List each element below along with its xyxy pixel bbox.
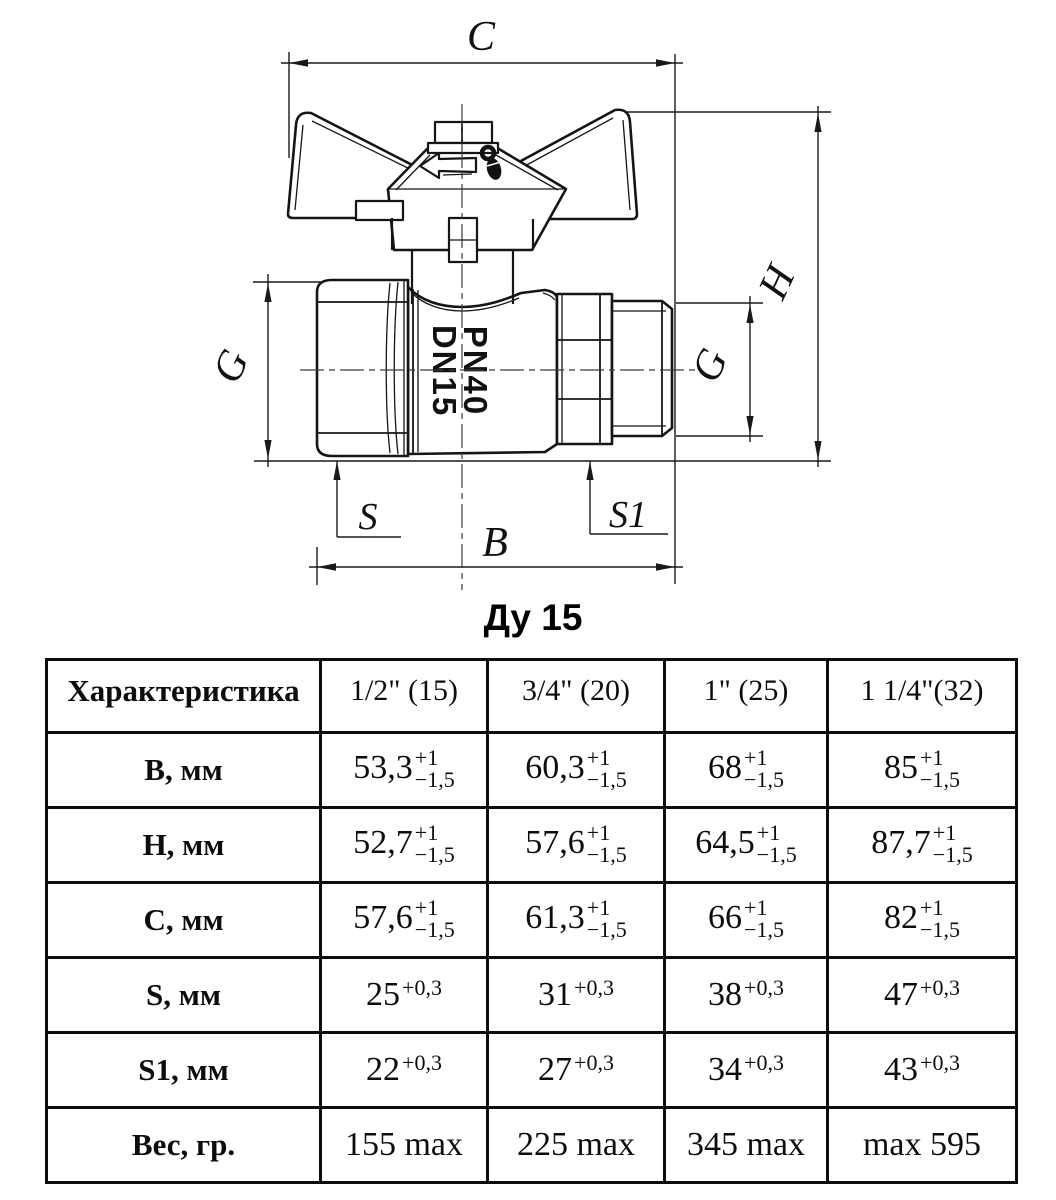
tolerance-upper: +0,3 — [744, 1050, 784, 1075]
tolerance: +1−1,5 — [415, 822, 455, 867]
dim-label-s1: S1 — [609, 494, 647, 536]
tolerance-upper: +1 — [757, 822, 780, 844]
tolerance-lower: −1,5 — [415, 769, 455, 791]
value-base: 87,7 — [871, 824, 931, 862]
dimension-g-right: G — [676, 296, 763, 442]
spec-table-container: Характеристика1/2" (15)3/4" (20)1" (25)1… — [45, 658, 1018, 1184]
tolerance-lower: −1,5 — [757, 844, 797, 866]
value-base: 64,5 — [695, 824, 755, 862]
tolerance-upper: +0,3 — [920, 975, 960, 1000]
value-cell: 87,7+1−1,5 — [828, 808, 1017, 883]
dimension-s: S — [333, 461, 401, 538]
tolerance-upper: +1 — [415, 747, 438, 769]
value-base: 53,3 — [353, 749, 413, 787]
tolerance-upper: +1 — [744, 747, 767, 769]
marking-dn15: DN15 — [426, 325, 463, 417]
value-base: 25 — [366, 976, 400, 1014]
value-base: 60,3 — [525, 749, 585, 787]
row-label: Вес, гр. — [47, 1108, 321, 1183]
dim-label-g-left: G — [204, 343, 259, 390]
male-thread-end — [612, 301, 672, 436]
value-cell: 61,3+1−1,5 — [488, 883, 665, 958]
handle-step-tab — [356, 201, 403, 220]
row-label: H, мм — [47, 808, 321, 883]
tolerance-upper: +1 — [587, 822, 610, 844]
value-base: max 595 — [863, 1126, 981, 1164]
right-hex-section — [557, 294, 612, 444]
value-base: 38 — [708, 976, 742, 1014]
value-base: 52,7 — [353, 824, 413, 862]
tolerance-lower: −1,5 — [744, 769, 784, 791]
row-label: S, мм — [47, 958, 321, 1033]
value-base: 85 — [884, 749, 918, 787]
value-base: 66 — [708, 899, 742, 937]
value-base: 47 — [884, 976, 918, 1014]
value-base: 22 — [366, 1051, 400, 1089]
value-base: 61,3 — [525, 899, 585, 937]
spec-table: Характеристика1/2" (15)3/4" (20)1" (25)1… — [45, 658, 1018, 1184]
tolerance: +1−1,5 — [744, 897, 784, 942]
row-label: C, мм — [47, 883, 321, 958]
value-cell: 57,6+1−1,5 — [488, 808, 665, 883]
size-column-header: 1" (25) — [665, 660, 828, 733]
tolerance: +1−1,5 — [587, 747, 627, 792]
tolerance-upper: +1 — [587, 897, 610, 919]
value-cell: 85+1−1,5 — [828, 733, 1017, 808]
tolerance-upper: +1 — [933, 822, 956, 844]
table-row: C, мм57,6+1−1,561,3+1−1,566+1−1,582+1−1,… — [47, 883, 1017, 958]
value-base: 225 max — [517, 1126, 635, 1164]
tolerance-upper: +1 — [415, 822, 438, 844]
value-cell: 64,5+1−1,5 — [665, 808, 828, 883]
value-cell: 27+0,3 — [488, 1033, 665, 1108]
tolerance-upper: +1 — [920, 747, 943, 769]
size-column-header: 1 1/4"(32) — [828, 660, 1017, 733]
tolerance: +1−1,5 — [587, 822, 627, 867]
tolerance-lower: −1,5 — [920, 919, 960, 941]
value-cell: 345 max — [665, 1108, 828, 1183]
table-row: S1, мм22+0,327+0,334+0,343+0,3 — [47, 1033, 1017, 1108]
value-cell: 60,3+1−1,5 — [488, 733, 665, 808]
characteristic-header: Характеристика — [47, 660, 321, 733]
dim-label-h: H — [750, 257, 806, 307]
value-cell: 57,6+1−1,5 — [321, 883, 488, 958]
tolerance-upper: +0,3 — [744, 975, 784, 1000]
tolerance-upper: +1 — [415, 897, 438, 919]
size-column-header: 3/4" (20) — [488, 660, 665, 733]
value-cell: 155 max — [321, 1108, 488, 1183]
value-base: 345 max — [687, 1126, 805, 1164]
tolerance-upper: +0,3 — [920, 1050, 960, 1075]
tolerance-lower: −1,5 — [933, 844, 973, 866]
row-label: S1, мм — [47, 1033, 321, 1108]
tolerance-lower: −1,5 — [415, 844, 455, 866]
value-cell: 25+0,3 — [321, 958, 488, 1033]
dim-label-g-right: G — [683, 342, 738, 389]
valve-technical-drawing: PN40 DN15 C H G — [0, 0, 1056, 655]
tolerance-lower: −1,5 — [587, 769, 627, 791]
size-column-header: 1/2" (15) — [321, 660, 488, 733]
body-marking: PN40 DN15 — [426, 325, 494, 417]
value-base: 57,6 — [525, 824, 585, 862]
value-base: 82 — [884, 899, 918, 937]
value-base: 57,6 — [353, 899, 413, 937]
tolerance-lower: −1,5 — [587, 844, 627, 866]
drawing-caption: Ду 15 — [484, 597, 583, 638]
value-base: 155 max — [345, 1126, 463, 1164]
table-row: S, мм25+0,331+0,338+0,347+0,3 — [47, 958, 1017, 1033]
table-row: H, мм52,7+1−1,557,6+1−1,564,5+1−1,587,7+… — [47, 808, 1017, 883]
value-cell: 82+1−1,5 — [828, 883, 1017, 958]
tolerance-lower: −1,5 — [744, 919, 784, 941]
value-cell: 52,7+1−1,5 — [321, 808, 488, 883]
value-cell: 53,3+1−1,5 — [321, 733, 488, 808]
tolerance-upper: +0,3 — [574, 1050, 614, 1075]
value-cell: max 595 — [828, 1108, 1017, 1183]
header-row: Характеристика1/2" (15)3/4" (20)1" (25)1… — [47, 660, 1017, 733]
datasheet-page: PN40 DN15 C H G — [0, 0, 1056, 1200]
tolerance-lower: −1,5 — [415, 919, 455, 941]
value-cell: 34+0,3 — [665, 1033, 828, 1108]
tolerance-upper: +1 — [744, 897, 767, 919]
dimension-s1: S1 — [586, 461, 668, 536]
tolerance-upper: +0,3 — [402, 975, 442, 1000]
tolerance: +1−1,5 — [920, 747, 960, 792]
tolerance: +1−1,5 — [933, 822, 973, 867]
dim-label-c: C — [467, 14, 496, 60]
tolerance-lower: −1,5 — [587, 919, 627, 941]
value-base: 27 — [538, 1051, 572, 1089]
spec-table-head: Характеристика1/2" (15)3/4" (20)1" (25)1… — [47, 660, 1017, 733]
value-base: 31 — [538, 976, 572, 1014]
row-label: B, мм — [47, 733, 321, 808]
value-cell: 22+0,3 — [321, 1033, 488, 1108]
tolerance-lower: −1,5 — [920, 769, 960, 791]
tolerance-upper: +1 — [587, 747, 610, 769]
tolerance: +1−1,5 — [587, 897, 627, 942]
tolerance: +1−1,5 — [415, 897, 455, 942]
tolerance: +1−1,5 — [920, 897, 960, 942]
spec-table-body: B, мм53,3+1−1,560,3+1−1,568+1−1,585+1−1,… — [47, 733, 1017, 1183]
value-cell: 225 max — [488, 1108, 665, 1183]
dim-label-b: B — [482, 520, 508, 566]
tolerance-upper: +0,3 — [574, 975, 614, 1000]
dim-label-s: S — [359, 496, 378, 538]
value-base: 34 — [708, 1051, 742, 1089]
tolerance-upper: +1 — [920, 897, 943, 919]
tolerance: +1−1,5 — [757, 822, 797, 867]
value-cell: 66+1−1,5 — [665, 883, 828, 958]
stem-cap — [435, 122, 492, 143]
value-cell: 43+0,3 — [828, 1033, 1017, 1108]
value-cell: 68+1−1,5 — [665, 733, 828, 808]
tolerance: +1−1,5 — [744, 747, 784, 792]
value-cell: 31+0,3 — [488, 958, 665, 1033]
value-base: 68 — [708, 749, 742, 787]
tolerance-upper: +0,3 — [402, 1050, 442, 1075]
table-row: Вес, гр.155 max225 max345 maxmax 595 — [47, 1108, 1017, 1183]
value-cell: 47+0,3 — [828, 958, 1017, 1033]
value-cell: 38+0,3 — [665, 958, 828, 1033]
value-base: 43 — [884, 1051, 918, 1089]
table-row: B, мм53,3+1−1,560,3+1−1,568+1−1,585+1−1,… — [47, 733, 1017, 808]
tolerance: +1−1,5 — [415, 747, 455, 792]
